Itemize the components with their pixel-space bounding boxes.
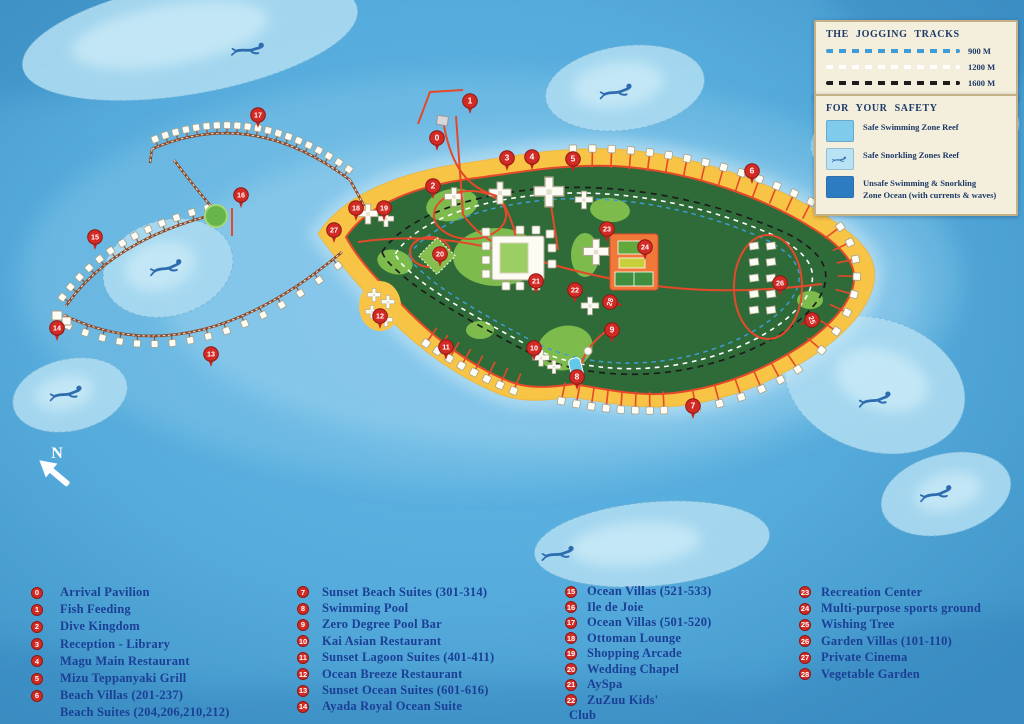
- legend-item-label: Kai Asian Restaurant: [322, 634, 441, 649]
- spa-unit-icon: [548, 260, 556, 268]
- legend-item-label: Beach Villas (201-237): [60, 688, 183, 703]
- beach-villa-icon: [631, 406, 639, 414]
- beach-villa-icon: [646, 148, 654, 156]
- map-marker-number: 0: [435, 133, 440, 143]
- legend-item: 9Zero Degree Pool Bar: [297, 617, 494, 633]
- legend-column-4: 23Recreation Center24Multi-purpose sport…: [799, 584, 981, 682]
- map-marker-number: 6: [750, 166, 755, 176]
- legend-item: 20Wedding Chapel: [565, 662, 712, 678]
- map-marker-number: 17: [254, 110, 262, 119]
- snorkeler-icon: [826, 148, 854, 170]
- legend-item: 3Reception - Library: [31, 636, 230, 653]
- legend-column-2: 7Sunset Beach Suites (301-314)8Swimming …: [297, 584, 494, 715]
- legend-item-label: Shopping Arcade: [587, 646, 682, 661]
- map-marker-number: 13: [207, 349, 215, 358]
- map-marker-number: 27: [330, 225, 338, 234]
- garden-villa-icon: [749, 242, 759, 250]
- track-dash-sample: [826, 81, 960, 85]
- legend-item-number: 26: [799, 635, 811, 647]
- legend-item: 15Ocean Villas (521-533): [565, 584, 712, 600]
- legend-item: 1Fish Feeding: [31, 601, 230, 618]
- zone-color-swatch: [826, 176, 854, 198]
- legend-item-label: Sunset Beach Suites (301-314): [322, 585, 487, 600]
- beach-villa-icon: [646, 407, 653, 414]
- legend-item-label: Vegetable Garden: [821, 667, 920, 682]
- water-villa-icon: [204, 332, 212, 340]
- map-marker-number: 15: [91, 232, 99, 241]
- legend-item-label: ZuZuu Kids': [587, 693, 658, 708]
- garden-villa-icon: [749, 274, 759, 282]
- legend-item-number: 16: [565, 601, 577, 613]
- legend-item-label: Ile de Joie: [587, 600, 643, 615]
- spa-unit-icon: [482, 242, 490, 250]
- beach-villa-icon: [589, 145, 596, 152]
- spa-unit-icon: [532, 226, 540, 234]
- legend-item-label: Beach Suites (204,206,210,212): [60, 705, 230, 720]
- water-villa-icon: [234, 122, 241, 129]
- garden-villa-icon: [766, 290, 776, 298]
- legend-item-label: Ottoman Lounge: [587, 631, 681, 646]
- jogging-legend-title: THE JOGGING TRACKS: [826, 29, 1006, 40]
- legend-item-label: Recreation Center: [821, 585, 922, 600]
- legend-item: 23Recreation Center: [799, 584, 981, 600]
- legend-item-number: 25: [799, 619, 811, 631]
- jogging-track-row: 900 M: [826, 46, 1006, 56]
- legend-item: 10Kai Asian Restaurant: [297, 633, 494, 649]
- legend-item: 28Vegetable Garden: [799, 666, 981, 682]
- legend-item: 25Wishing Tree: [799, 617, 981, 633]
- legend-item-label: Fish Feeding: [60, 602, 131, 617]
- beach-villa-icon: [683, 154, 692, 163]
- garden-villa-icon: [766, 242, 776, 250]
- beach-villa-icon: [701, 158, 710, 167]
- legend-item-label: Ocean Villas (521-533): [587, 584, 712, 599]
- map-marker-number: 18: [352, 203, 360, 212]
- legend-item-number: 1: [31, 604, 43, 616]
- safety-zone-row: Safe Swimming Zone Reef: [826, 120, 1006, 142]
- legend-item-number: 20: [565, 663, 577, 675]
- track-distance-label: 900 M: [968, 46, 1006, 56]
- map-marker-number: 23: [603, 224, 611, 233]
- beach-villa-icon: [849, 290, 858, 299]
- zone-label: Unsafe Swimming & SnorklingZone Ocean (w…: [863, 176, 996, 202]
- map-marker-number: 11: [442, 342, 450, 351]
- track-distance-label: 1200 M: [968, 62, 1006, 72]
- garden-villa-icon: [749, 290, 759, 298]
- garden-villa-icon: [766, 306, 776, 314]
- legend-item: 18Ottoman Lounge: [565, 631, 712, 647]
- water-villa-icon: [264, 126, 272, 134]
- safety-zone-row: Unsafe Swimming & SnorklingZone Ocean (w…: [826, 176, 1006, 202]
- water-villa-icon: [244, 123, 252, 131]
- legend-column-3: 15Ocean Villas (521-533)16Ile de Joie17O…: [565, 584, 712, 724]
- resort-map-page: 0123456789101112131415161718192021222324…: [0, 0, 1024, 724]
- legend-item-label: Arrival Pavilion: [60, 585, 150, 600]
- track-distance-label: 1600 M: [968, 78, 1006, 88]
- legend-item-number: 8: [297, 603, 309, 615]
- legend-item-label: Multi-purpose sports ground: [821, 601, 981, 616]
- water-villa-icon: [98, 334, 106, 342]
- map-marker-number: 16: [237, 190, 245, 199]
- legend-item-number: 4: [31, 655, 43, 667]
- water-villa-icon: [224, 122, 231, 129]
- legend-item-number: 0: [31, 587, 43, 599]
- legend-item-label: Ocean Villas (501-520): [587, 615, 712, 630]
- legend-item-number: 14: [297, 701, 309, 713]
- map-marker-number: 20: [436, 249, 444, 258]
- legend-item: 19Shopping Arcade: [565, 646, 712, 662]
- legend-item-number: 9: [297, 619, 309, 631]
- legend-item-number: 28: [799, 668, 811, 680]
- legend-item-number: 12: [297, 668, 309, 680]
- map-marker-number: 2: [431, 181, 436, 191]
- legend-item-label: Dive Kingdom: [60, 619, 140, 634]
- spa-unit-icon: [482, 228, 490, 236]
- spa-unit-icon: [548, 244, 556, 252]
- beach-villa-icon: [572, 400, 581, 409]
- legend-item-number: 18: [565, 632, 577, 644]
- legend-item-label: Ocean Breeze Restaurant: [322, 667, 462, 682]
- legend-item: 11Sunset Lagoon Suites (401-411): [297, 650, 494, 666]
- legend-item: 26Garden Villas (101-110): [799, 633, 981, 649]
- legend-item: 6Beach Villas (201-237): [31, 687, 230, 704]
- spa-unit-icon: [516, 226, 524, 234]
- safety-zone-row: Safe Snorkling Zones Reef: [826, 148, 1006, 170]
- map-marker-number: 14: [53, 323, 61, 332]
- map-marker-number: 5: [571, 154, 576, 164]
- legend-item-label: AySpa: [587, 677, 623, 692]
- legend-item: 27Private Cinema: [799, 650, 981, 666]
- legend-item-label: Garden Villas (101-110): [821, 634, 952, 649]
- beach-villa-icon: [587, 402, 595, 410]
- legend-item: 5Mizu Teppanyaki Grill: [31, 670, 230, 687]
- map-marker-number: 24: [641, 242, 649, 251]
- map-marker-number: 3: [505, 153, 510, 163]
- beach-villa-icon: [557, 396, 566, 405]
- water-villa-icon: [188, 208, 197, 217]
- legend-item: 13Sunset Ocean Suites (601-616): [297, 682, 494, 698]
- water-villa-icon: [192, 124, 200, 132]
- spa-unit-icon: [482, 270, 490, 278]
- legend-item-line2: Beach Suites (204,206,210,212): [31, 704, 230, 721]
- beach-villa-icon: [853, 273, 861, 281]
- water-villa-icon: [213, 122, 220, 129]
- legend-item-number: 24: [799, 603, 811, 615]
- map-marker-number: 4: [530, 152, 535, 162]
- map-marker-number: 7: [691, 401, 696, 411]
- map-marker-number: 12: [376, 311, 384, 320]
- safety-legend: FOR YOUR SAFETY Safe Swimming Zone ReefS…: [814, 94, 1018, 216]
- water-villa-icon: [182, 126, 190, 134]
- legend-item-label: Mizu Teppanyaki Grill: [60, 671, 186, 686]
- legend-item-label: Private Cinema: [821, 650, 907, 665]
- spa-unit-icon: [502, 282, 510, 290]
- legend-item-number: 15: [565, 586, 577, 598]
- legend-item-number: 2: [31, 621, 43, 633]
- legend-item: 17Ocean Villas (501-520): [565, 615, 712, 631]
- legend-item-label: Sunset Ocean Suites (601-616): [322, 683, 489, 698]
- spa-unit-icon: [516, 282, 524, 290]
- beach-villa-icon: [719, 163, 728, 172]
- jogging-track-row: 1600 M: [826, 78, 1006, 88]
- legend-item-label: Wedding Chapel: [587, 662, 679, 677]
- legend-item-number: 19: [565, 648, 577, 660]
- legend-item: 7Sunset Beach Suites (301-314): [297, 584, 494, 600]
- legend-item: 12Ocean Breeze Restaurant: [297, 666, 494, 682]
- legend-item: 4Magu Main Restaurant: [31, 653, 230, 670]
- beach-villa-icon: [627, 146, 635, 154]
- jogging-tracks-legend: THE JOGGING TRACKS 900 M1200 M1600 M: [814, 20, 1018, 101]
- legend-item: 22ZuZuu Kids': [565, 693, 712, 709]
- legend-item-label: Wishing Tree: [821, 617, 894, 632]
- jogging-track-row: 1200 M: [826, 62, 1006, 72]
- track-dash-sample: [826, 49, 960, 53]
- legend-item: 24Multi-purpose sports ground: [799, 600, 981, 616]
- legend-item: 2Dive Kingdom: [31, 618, 230, 635]
- beach-villa-icon: [602, 404, 610, 412]
- garden-villa-icon: [766, 258, 776, 266]
- legend-item: 14Ayada Royal Ocean Suite: [297, 699, 494, 715]
- legend-item-label: Reception - Library: [60, 637, 170, 652]
- water-villa-icon: [133, 340, 140, 347]
- legend-item-label: Sunset Lagoon Suites (401-411): [322, 650, 494, 665]
- map-marker-number: 19: [380, 203, 388, 212]
- legend-item: 0Arrival Pavilion: [31, 584, 230, 601]
- legend-item: 16Ile de Joie: [565, 600, 712, 616]
- legend-item: 8Swimming Pool: [297, 600, 494, 616]
- map-marker-number: 9: [610, 325, 615, 335]
- beach-villa-icon: [851, 255, 860, 264]
- beach-villa-icon: [664, 151, 672, 159]
- map-marker-number: 26: [776, 278, 784, 287]
- garden-villa-icon: [749, 258, 759, 266]
- spa-unit-icon: [546, 230, 554, 238]
- legend-item-number: 7: [297, 586, 309, 598]
- garden-villa-icon: [749, 306, 759, 314]
- legend-item-number: 6: [31, 690, 43, 702]
- arrival-pavilion-building: [436, 115, 448, 125]
- legend-item-number: 22: [565, 694, 577, 706]
- legend-item-line2: Club: [565, 708, 712, 724]
- legend-item-number: 3: [31, 638, 43, 650]
- water-villa-icon: [203, 122, 210, 129]
- map-marker-number: 1: [468, 96, 473, 106]
- legend-item-label: Magu Main Restaurant: [60, 654, 190, 669]
- legend-item-label: Ayada Royal Ocean Suite: [322, 699, 462, 714]
- legend-item-label: Zero Degree Pool Bar: [322, 617, 442, 632]
- legend-item-number: 21: [565, 679, 577, 691]
- water-villa-icon: [169, 339, 176, 346]
- compass-label: N: [51, 445, 63, 462]
- map-marker-number: 10: [530, 343, 538, 352]
- legend-item-label: Swimming Pool: [322, 601, 408, 616]
- zone-color-swatch: [826, 120, 854, 142]
- legend-item-number: 11: [297, 652, 309, 664]
- water-villa-icon: [186, 336, 194, 344]
- legend-item-number: 13: [297, 685, 309, 697]
- legend-item-number: 10: [297, 635, 309, 647]
- legend-item-number: 23: [799, 586, 811, 598]
- beach-villa-icon: [660, 406, 668, 414]
- beach-villa-icon: [617, 406, 625, 414]
- water-villa-icon: [116, 337, 124, 345]
- safety-legend-title: FOR YOUR SAFETY: [826, 103, 1006, 114]
- water-villa-icon: [274, 129, 282, 137]
- beach-villa-icon: [608, 145, 616, 153]
- map-marker-number: 21: [532, 276, 540, 285]
- legend-item-number: 17: [565, 617, 577, 629]
- legend-item-number: 27: [799, 652, 811, 664]
- legend-item: 21AySpa: [565, 677, 712, 693]
- beach-villa-icon: [715, 399, 724, 408]
- legend-item-number: 5: [31, 673, 43, 685]
- legend-item-label: Club: [569, 708, 596, 723]
- water-villa-icon: [171, 128, 179, 136]
- map-marker-number: 8: [575, 372, 580, 382]
- legend-column-1: 0Arrival Pavilion1Fish Feeding2Dive King…: [31, 584, 230, 722]
- zone-label: Safe Snorkling Zones Reef: [863, 148, 959, 162]
- water-villa-icon: [151, 341, 158, 348]
- map-marker-number: 22: [571, 285, 579, 294]
- track-dash-sample: [826, 65, 960, 69]
- spa-unit-icon: [482, 256, 490, 264]
- zone-label: Safe Swimming Zone Reef: [863, 120, 959, 134]
